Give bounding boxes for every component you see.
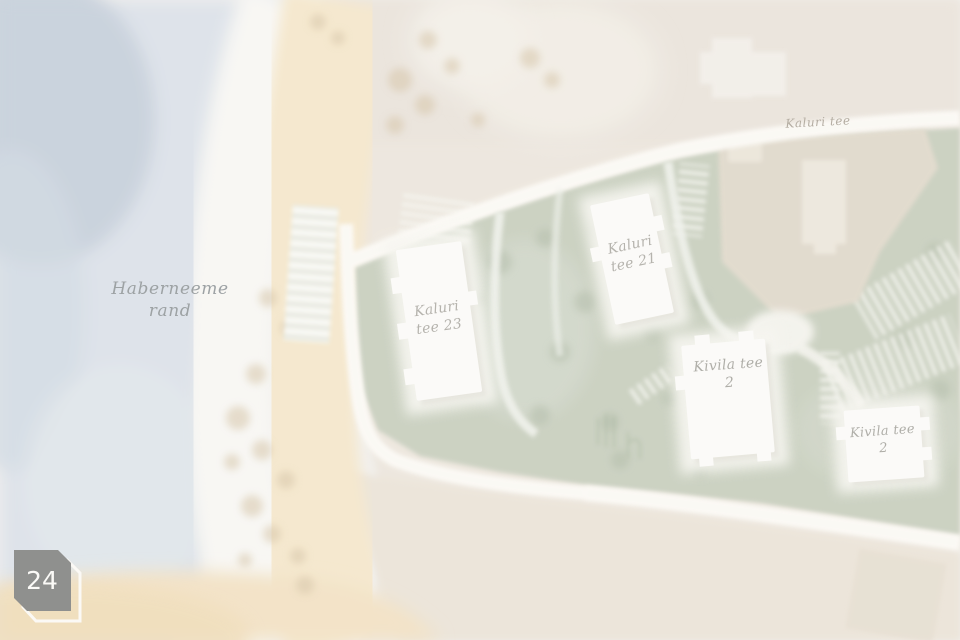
page-number-badge: 24 [14, 550, 86, 628]
site-plan-illustration [0, 0, 960, 640]
watercolor-wash [0, 0, 960, 640]
site-plan-page: Haberneeme rand Kaluri tee Kaluri tee 23… [0, 0, 960, 640]
page-number: 24 [26, 566, 58, 595]
